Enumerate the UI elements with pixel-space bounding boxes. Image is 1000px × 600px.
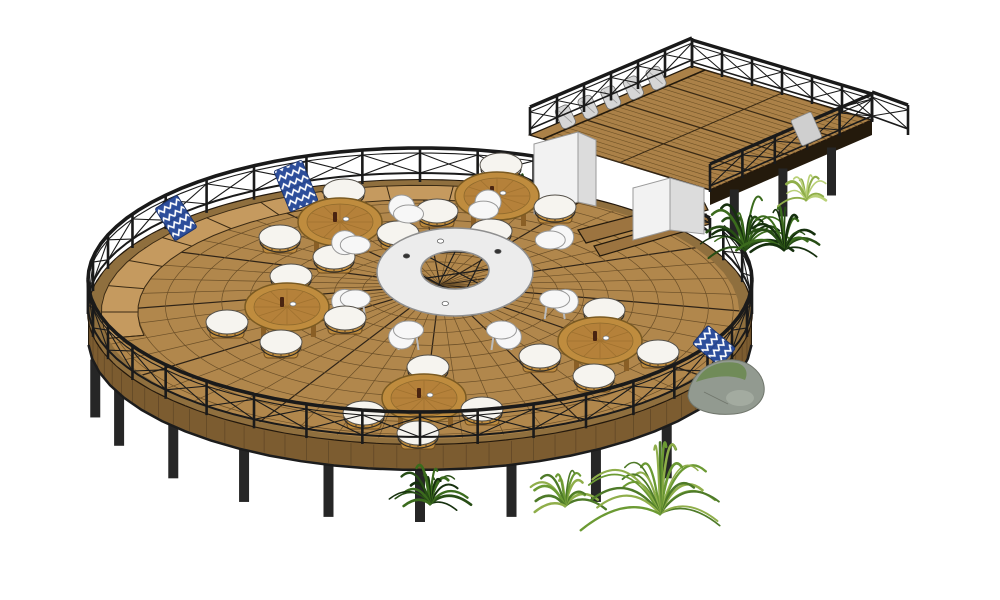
table-cup (437, 239, 443, 243)
chair-seat (340, 290, 370, 308)
stool-cushion (397, 421, 439, 445)
stool-cushion (534, 195, 576, 219)
white-partition (670, 178, 704, 234)
stool-cushion (206, 310, 248, 334)
stool-cushion (324, 306, 366, 330)
stool (260, 330, 302, 358)
table-bottle (593, 331, 597, 341)
chair-seat (486, 321, 516, 339)
rock-highlight (726, 390, 754, 406)
table-cup (442, 301, 448, 305)
table-cup (290, 302, 296, 306)
chair-seat (540, 290, 570, 308)
table-cup (495, 249, 501, 253)
support-post (239, 444, 249, 502)
table-cup (427, 393, 433, 397)
scene-svg (0, 0, 1000, 600)
white-partition (633, 178, 670, 240)
stool (259, 225, 301, 253)
support-post (507, 459, 517, 517)
table-bottle (417, 388, 421, 398)
support-post (827, 148, 836, 196)
table-bottle (333, 212, 337, 222)
stool (324, 306, 366, 334)
stool-cushion (573, 364, 615, 388)
chair-seat (468, 201, 498, 219)
render-canvas (0, 0, 1000, 600)
chair-seat (340, 236, 370, 254)
stool-cushion (260, 330, 302, 354)
stool (519, 344, 561, 372)
table-cup (403, 254, 409, 258)
stool (534, 195, 576, 223)
white-partition (578, 132, 596, 206)
stool-cushion (637, 340, 679, 364)
table-cup (343, 217, 349, 221)
table-cup (603, 336, 609, 340)
table-cup (500, 191, 506, 195)
stool-cushion (259, 225, 301, 249)
chair-seat (535, 231, 565, 249)
table-bottle (280, 297, 284, 307)
stool (397, 421, 439, 449)
support-post (323, 459, 333, 517)
stool (206, 310, 248, 338)
chair-seat (394, 205, 424, 223)
stool-cushion (519, 344, 561, 368)
chair-seat (394, 321, 424, 339)
support-post (168, 420, 178, 478)
